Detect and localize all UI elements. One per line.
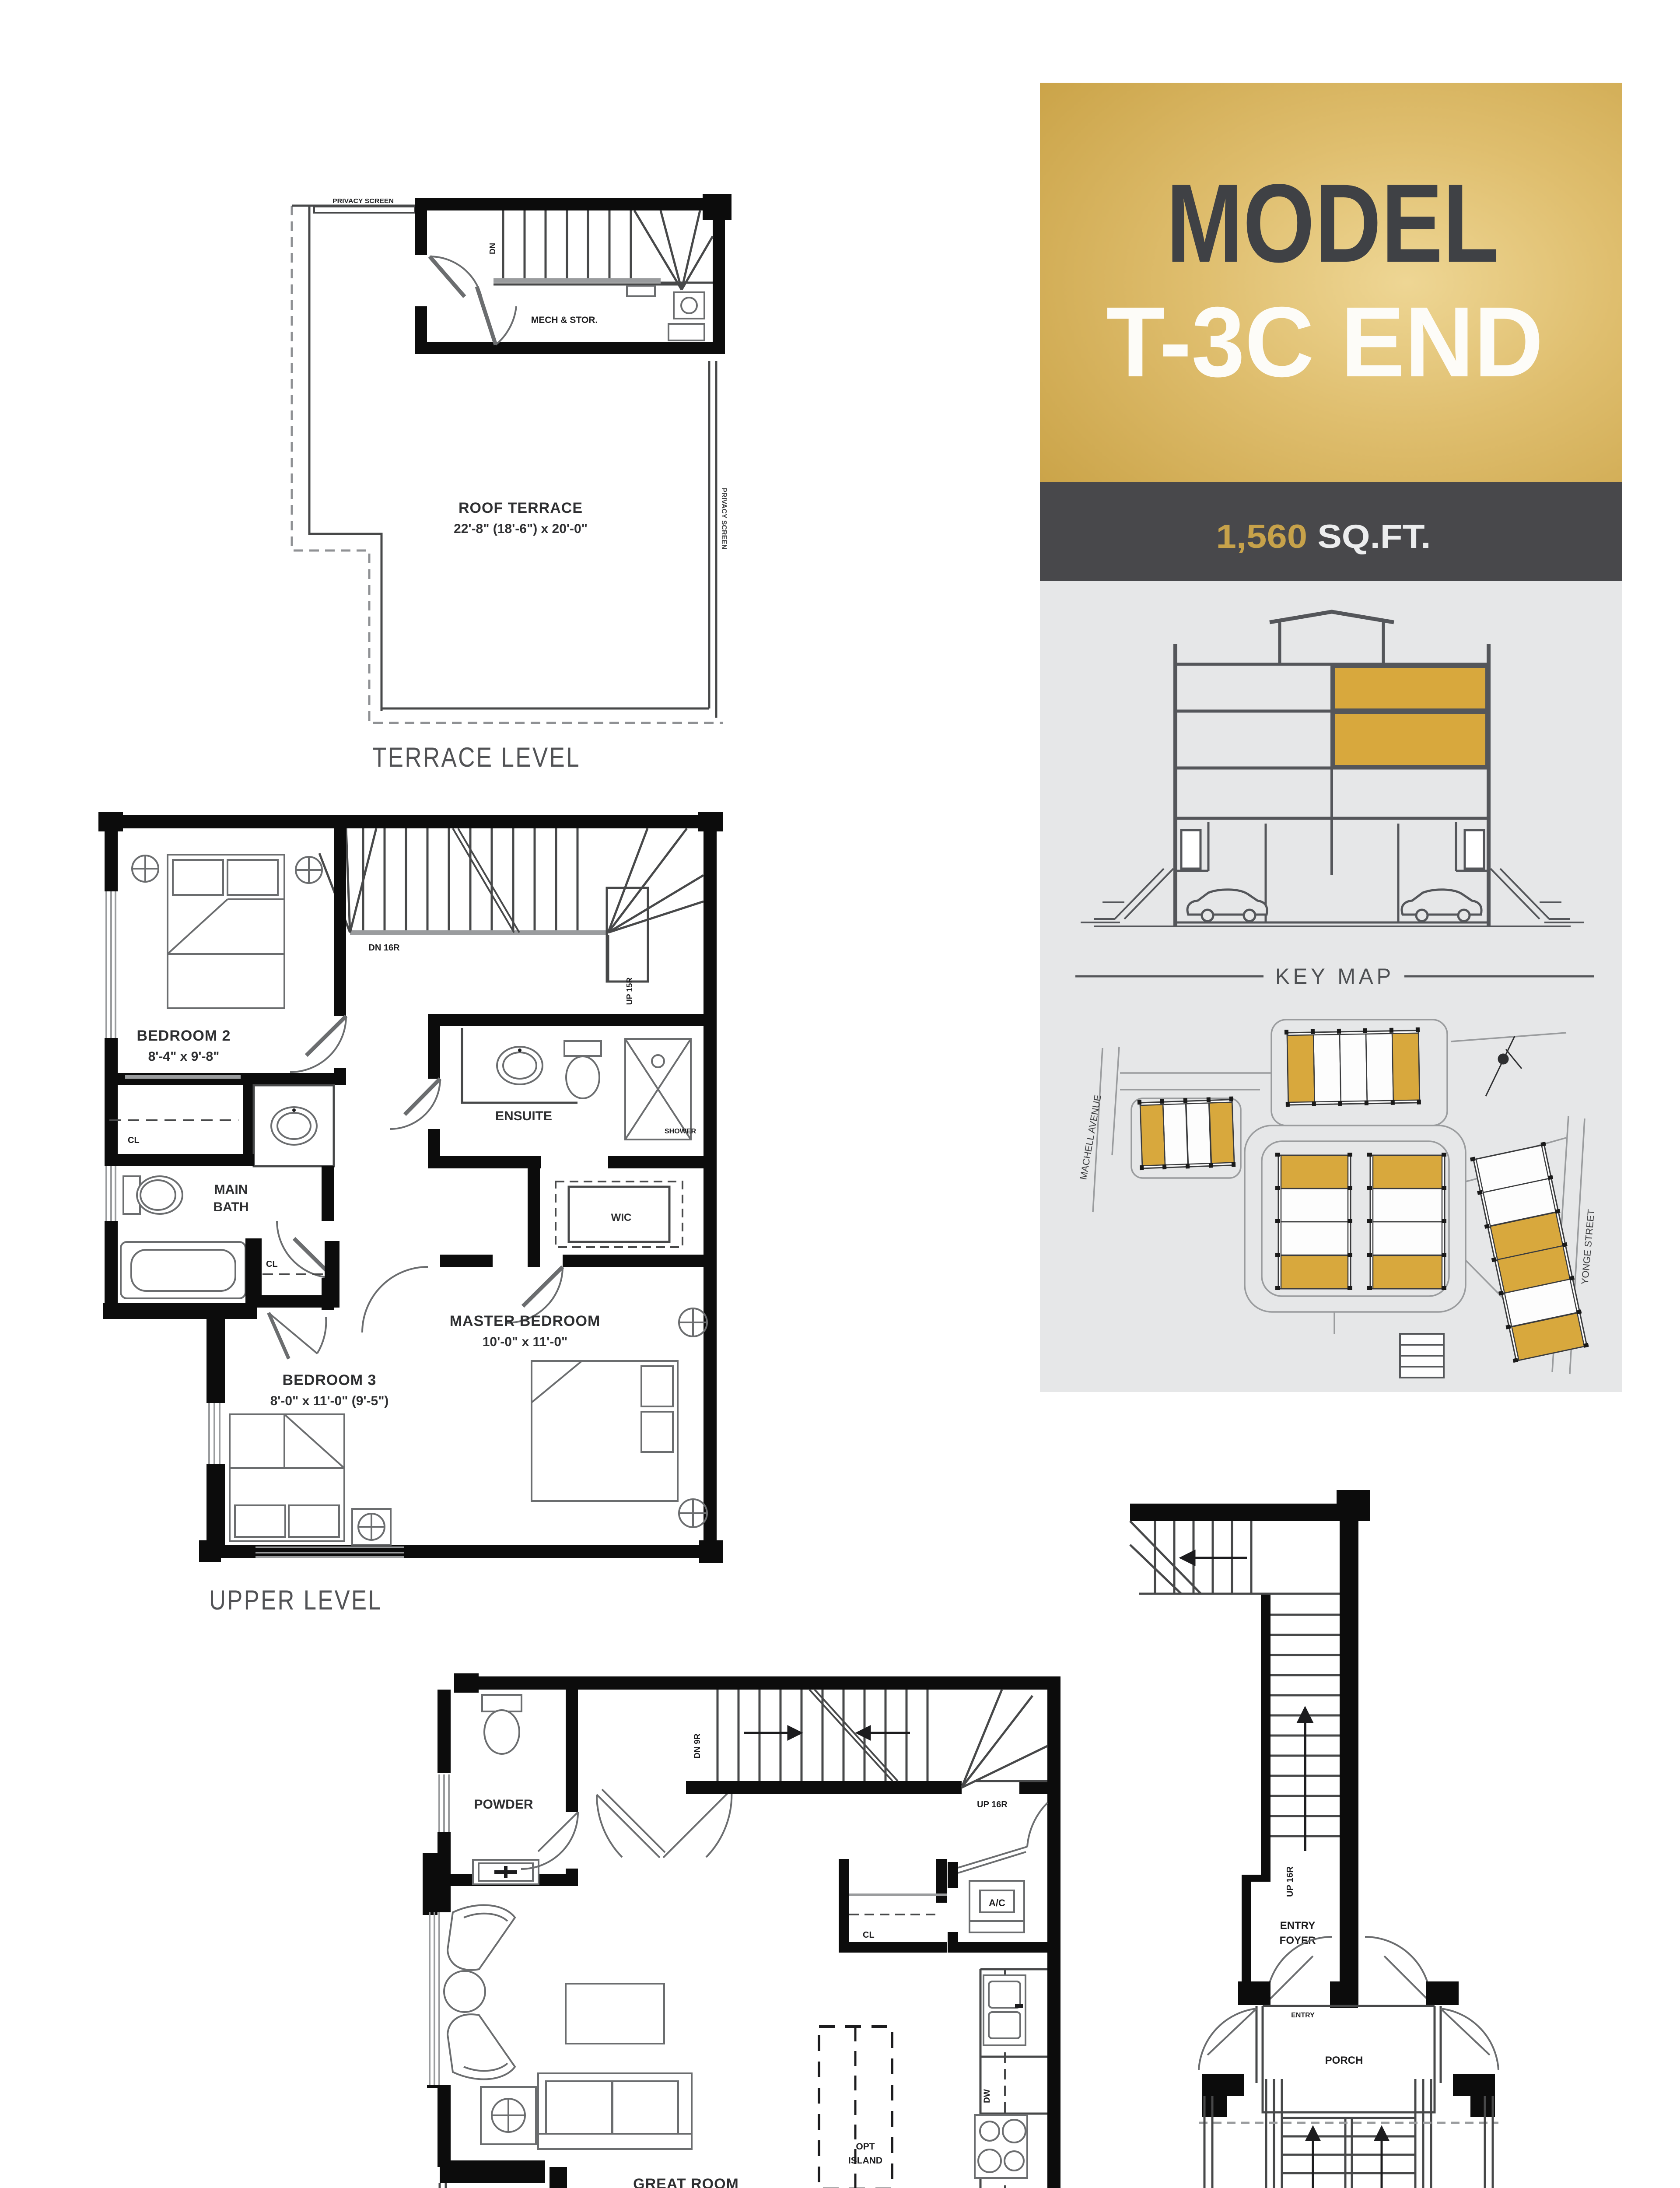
- svg-text:PORCH: PORCH: [1325, 2055, 1363, 2066]
- svg-text:CL: CL: [128, 1136, 140, 1145]
- svg-text:ENSUITE: ENSUITE: [495, 1109, 552, 1123]
- svg-text:A/C: A/C: [989, 1897, 1005, 1908]
- svg-text:KEY MAP: KEY MAP: [1275, 964, 1394, 989]
- svg-text:UPPER LEVEL: UPPER LEVEL: [209, 1585, 382, 1616]
- svg-text:ENTRY: ENTRY: [1291, 2012, 1315, 2019]
- svg-text:1,560 SQ.FT.: 1,560 SQ.FT.: [1216, 518, 1431, 555]
- svg-text:UP 16R: UP 16R: [1285, 1866, 1295, 1897]
- svg-text:MAIN: MAIN: [214, 1182, 248, 1197]
- svg-text:8'-0" x 11'-0" (9'-5"): 8'-0" x 11'-0" (9'-5"): [270, 1394, 389, 1408]
- svg-text:OPT: OPT: [856, 2142, 875, 2152]
- svg-text:SHOWER: SHOWER: [665, 1128, 696, 1135]
- svg-text:DN: DN: [488, 243, 497, 254]
- svg-text:MASTER BEDROOM: MASTER BEDROOM: [450, 1313, 601, 1329]
- svg-text:UP 16R: UP 16R: [977, 1800, 1008, 1809]
- svg-text:MECH & STOR.: MECH & STOR.: [531, 315, 598, 325]
- svg-text:DW: DW: [983, 2089, 992, 2103]
- svg-text:CL: CL: [266, 1259, 278, 1269]
- svg-text:TERRACE LEVEL: TERRACE LEVEL: [372, 742, 581, 773]
- svg-text:22'-8" (18'-6") x 20'-0": 22'-8" (18'-6") x 20'-0": [454, 522, 588, 536]
- svg-text:ISLAND: ISLAND: [848, 2156, 882, 2166]
- svg-text:UP 15R: UP 15R: [625, 978, 634, 1005]
- svg-text:GREAT ROOM: GREAT ROOM: [633, 2176, 739, 2188]
- svg-text:POWDER: POWDER: [474, 1797, 533, 1812]
- svg-text:DN 9R: DN 9R: [693, 1733, 702, 1758]
- svg-text:8'-4" x 9'-8": 8'-4" x 9'-8": [148, 1049, 220, 1064]
- svg-text:CL: CL: [863, 1930, 875, 1940]
- svg-text:BEDROOM 2: BEDROOM 2: [137, 1027, 231, 1044]
- svg-text:MODEL: MODEL: [1166, 161, 1499, 286]
- svg-text:PRIVACY SCREEN: PRIVACY SCREEN: [332, 197, 394, 205]
- svg-text:ROOF TERRACE: ROOF TERRACE: [458, 500, 583, 516]
- svg-text:DN 16R: DN 16R: [368, 943, 400, 953]
- svg-text:BATH: BATH: [213, 1200, 248, 1214]
- svg-text:T-3C END: T-3C END: [1106, 287, 1543, 398]
- svg-text:ENTRY: ENTRY: [1280, 1920, 1315, 1932]
- svg-text:PRIVACY SCREEN: PRIVACY SCREEN: [720, 488, 728, 550]
- svg-text:BEDROOM 3: BEDROOM 3: [283, 1372, 377, 1389]
- svg-text:10'-0" x 11'-0": 10'-0" x 11'-0": [483, 1335, 568, 1349]
- svg-text:WIC: WIC: [611, 1212, 632, 1224]
